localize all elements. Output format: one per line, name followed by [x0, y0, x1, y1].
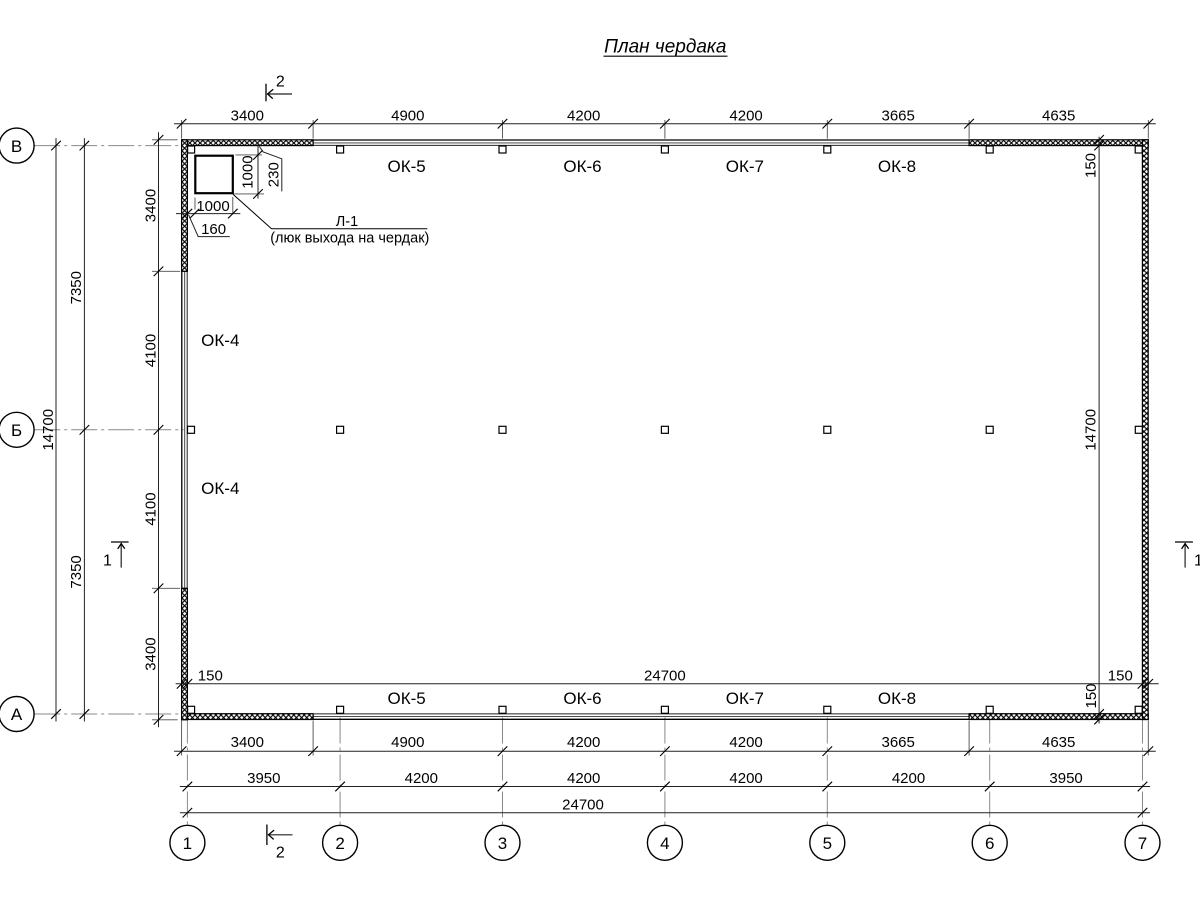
svg-text:3950: 3950 — [247, 770, 280, 787]
svg-text:14700: 14700 — [1083, 409, 1100, 451]
svg-text:4635: 4635 — [1042, 734, 1075, 751]
svg-text:5: 5 — [823, 834, 832, 853]
svg-text:4635: 4635 — [1042, 107, 1075, 124]
svg-text:3400: 3400 — [142, 637, 159, 670]
svg-text:1000: 1000 — [240, 155, 257, 188]
svg-text:План чердака: План чердака — [604, 36, 726, 57]
svg-text:150: 150 — [198, 667, 223, 684]
svg-text:4200: 4200 — [729, 107, 762, 124]
svg-text:4200: 4200 — [729, 770, 762, 787]
svg-text:4900: 4900 — [391, 107, 424, 124]
svg-text:2: 2 — [335, 834, 344, 853]
svg-text:ОК-6: ОК-6 — [563, 689, 601, 708]
svg-text:24700: 24700 — [562, 797, 604, 814]
svg-text:4200: 4200 — [405, 770, 438, 787]
svg-text:3665: 3665 — [882, 734, 915, 751]
svg-text:Л-1: Л-1 — [336, 214, 358, 230]
svg-text:3400: 3400 — [231, 734, 264, 751]
svg-text:ОК-5: ОК-5 — [387, 689, 425, 708]
svg-text:7350: 7350 — [68, 555, 85, 588]
svg-text:7: 7 — [1138, 834, 1147, 853]
svg-text:ОК-5: ОК-5 — [387, 157, 425, 176]
svg-text:2: 2 — [276, 74, 285, 91]
svg-text:230: 230 — [265, 162, 282, 187]
svg-text:6: 6 — [985, 834, 994, 853]
svg-text:3400: 3400 — [142, 189, 159, 222]
svg-text:4100: 4100 — [142, 492, 159, 525]
svg-text:3: 3 — [498, 834, 507, 853]
svg-text:14700: 14700 — [40, 409, 57, 451]
svg-text:2: 2 — [276, 844, 285, 861]
svg-text:1: 1 — [103, 552, 112, 569]
svg-text:150: 150 — [1108, 667, 1133, 684]
svg-text:(люк выхода на чердак): (люк выхода на чердак) — [270, 230, 429, 246]
svg-text:4900: 4900 — [391, 734, 424, 751]
svg-text:ОК-4: ОК-4 — [201, 479, 239, 498]
svg-text:Б: Б — [11, 421, 22, 440]
svg-text:1: 1 — [183, 834, 192, 853]
svg-text:ОК-8: ОК-8 — [878, 157, 916, 176]
svg-text:В: В — [11, 137, 22, 156]
svg-text:24700: 24700 — [644, 667, 686, 684]
svg-text:150: 150 — [1083, 683, 1100, 708]
svg-text:1: 1 — [1194, 552, 1200, 569]
svg-text:7350: 7350 — [68, 271, 85, 304]
svg-text:А: А — [11, 705, 23, 724]
svg-text:160: 160 — [201, 221, 226, 238]
svg-text:4200: 4200 — [567, 107, 600, 124]
svg-text:ОК-7: ОК-7 — [726, 157, 764, 176]
svg-text:1000: 1000 — [196, 198, 229, 215]
svg-text:ОК-4: ОК-4 — [201, 331, 239, 350]
svg-text:4200: 4200 — [892, 770, 925, 787]
svg-text:3400: 3400 — [231, 107, 264, 124]
svg-text:150: 150 — [1083, 153, 1100, 178]
svg-text:4: 4 — [660, 834, 669, 853]
svg-text:4200: 4200 — [729, 734, 762, 751]
svg-text:ОК-7: ОК-7 — [726, 689, 764, 708]
svg-text:4200: 4200 — [567, 770, 600, 787]
svg-text:3950: 3950 — [1049, 770, 1082, 787]
svg-text:ОК-6: ОК-6 — [563, 157, 601, 176]
svg-text:ОК-8: ОК-8 — [878, 689, 916, 708]
svg-text:4100: 4100 — [142, 334, 159, 367]
svg-text:4200: 4200 — [567, 734, 600, 751]
svg-text:3665: 3665 — [882, 107, 915, 124]
